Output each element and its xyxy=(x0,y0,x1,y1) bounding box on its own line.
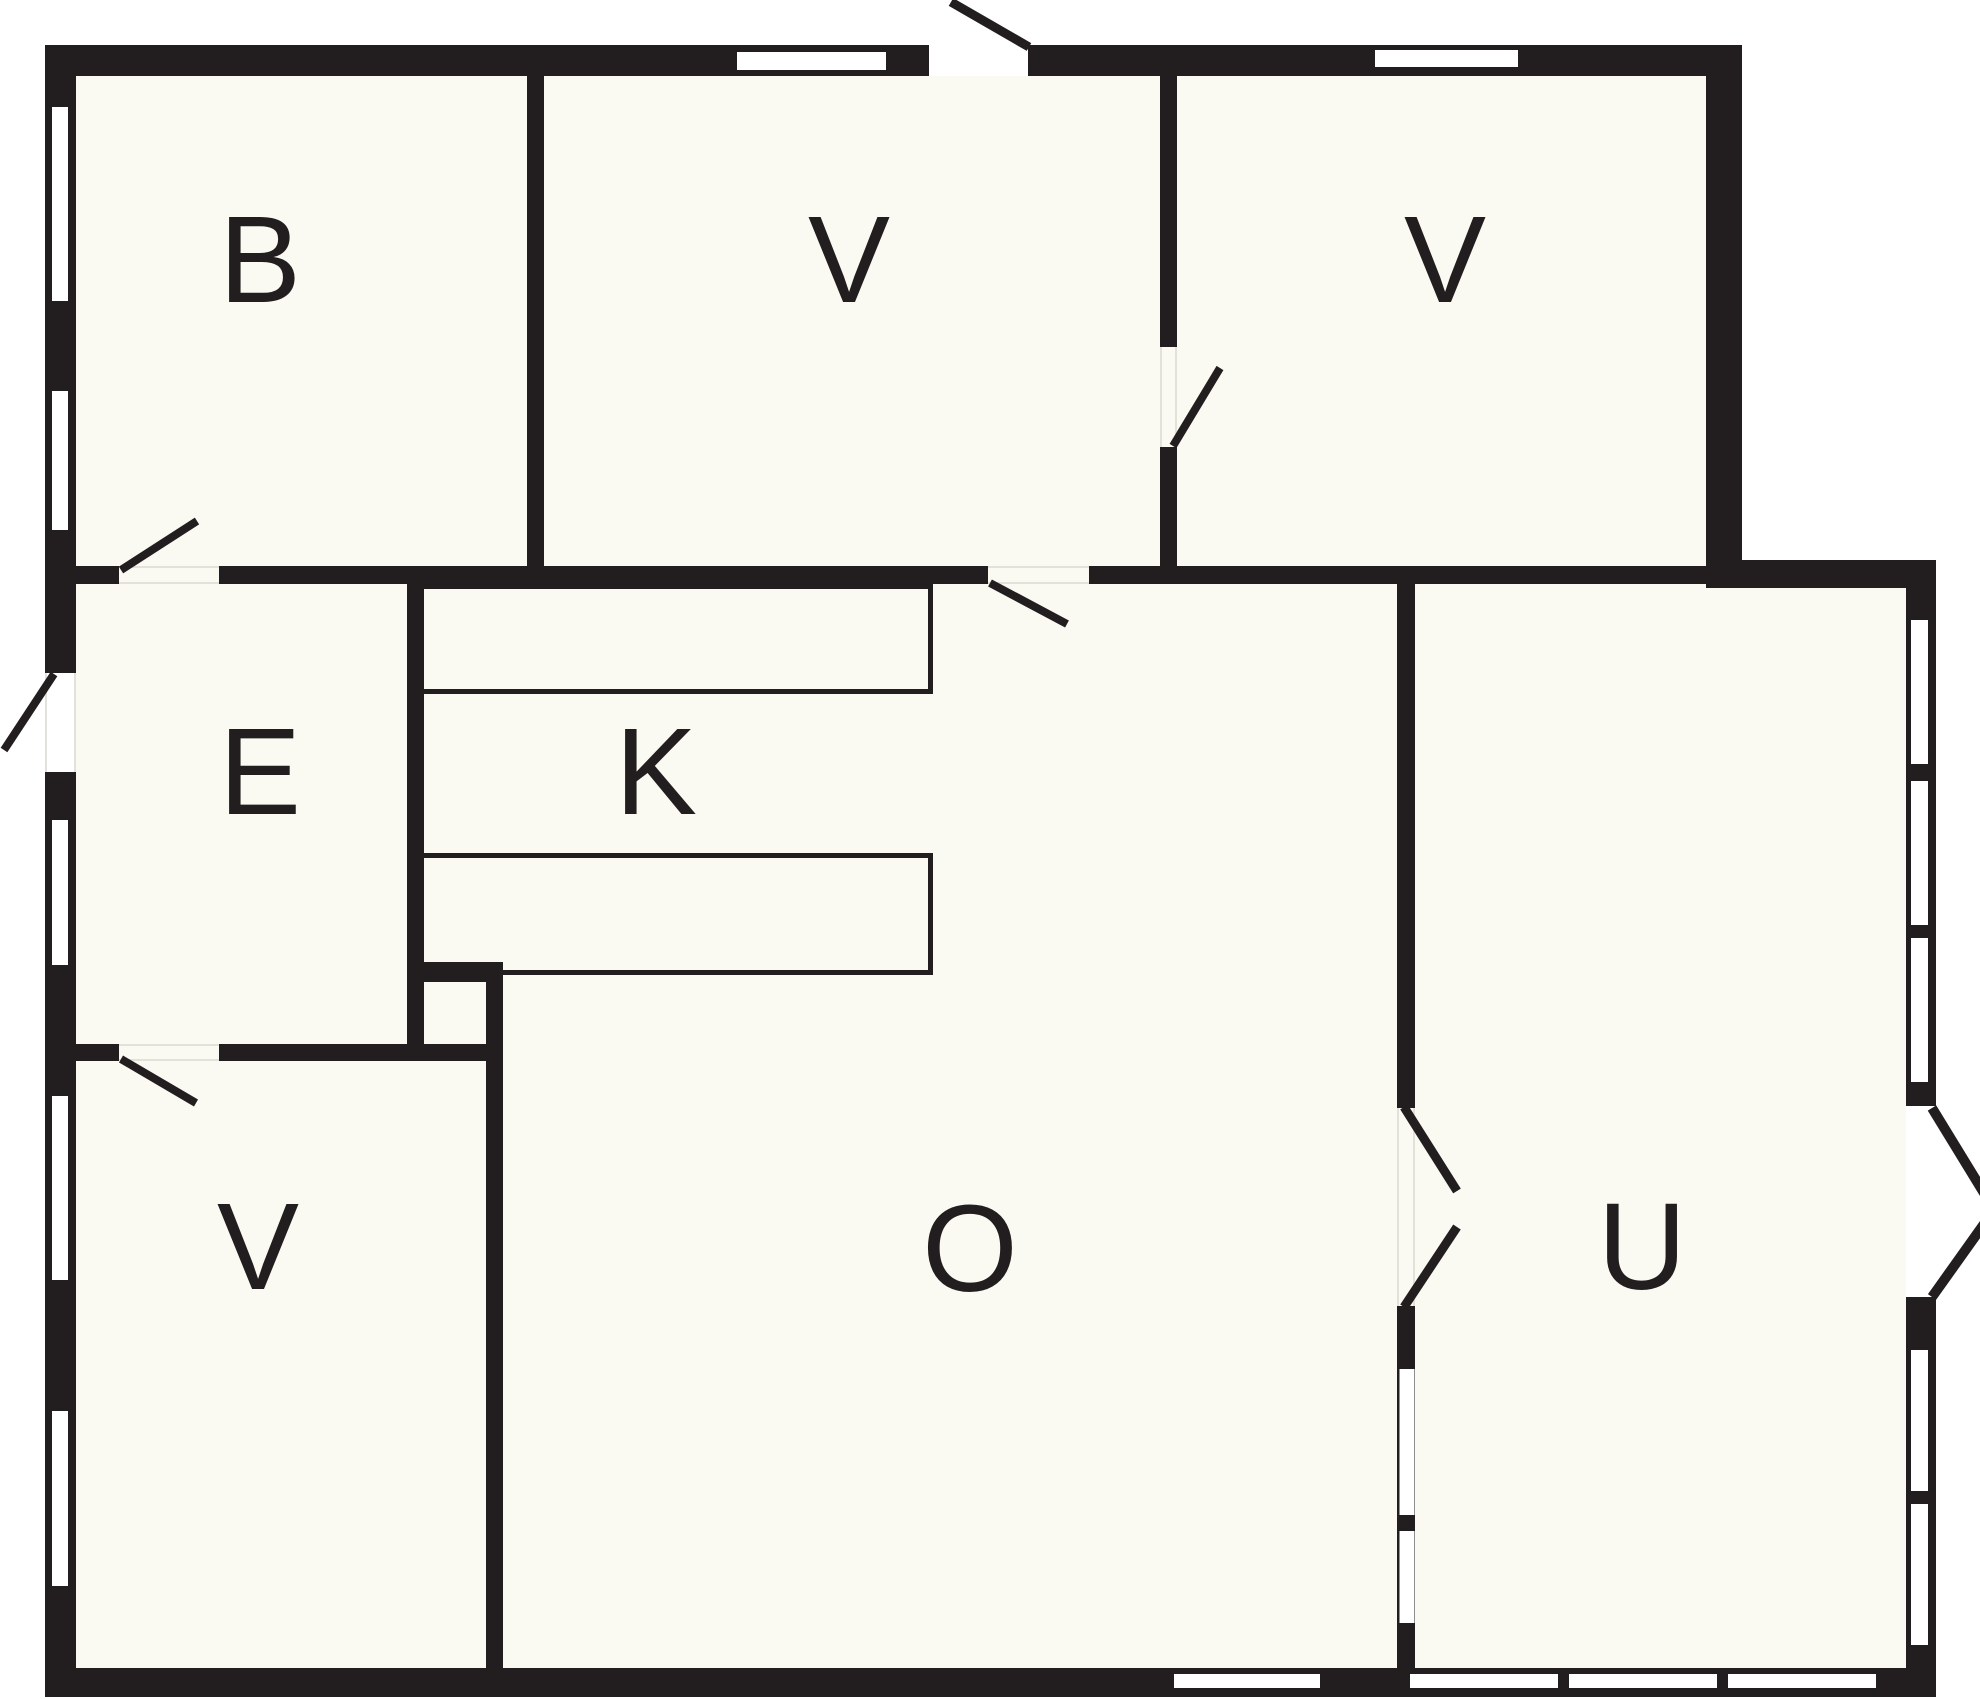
svg-text:U: U xyxy=(1598,1179,1687,1316)
svg-text:V: V xyxy=(217,1179,299,1316)
svg-text:E: E xyxy=(219,704,301,841)
svg-text:V: V xyxy=(1404,192,1486,329)
svg-text:V: V xyxy=(808,192,890,329)
svg-text:B: B xyxy=(219,192,301,329)
svg-text:O: O xyxy=(922,1181,1018,1318)
svg-text:K: K xyxy=(615,704,697,841)
